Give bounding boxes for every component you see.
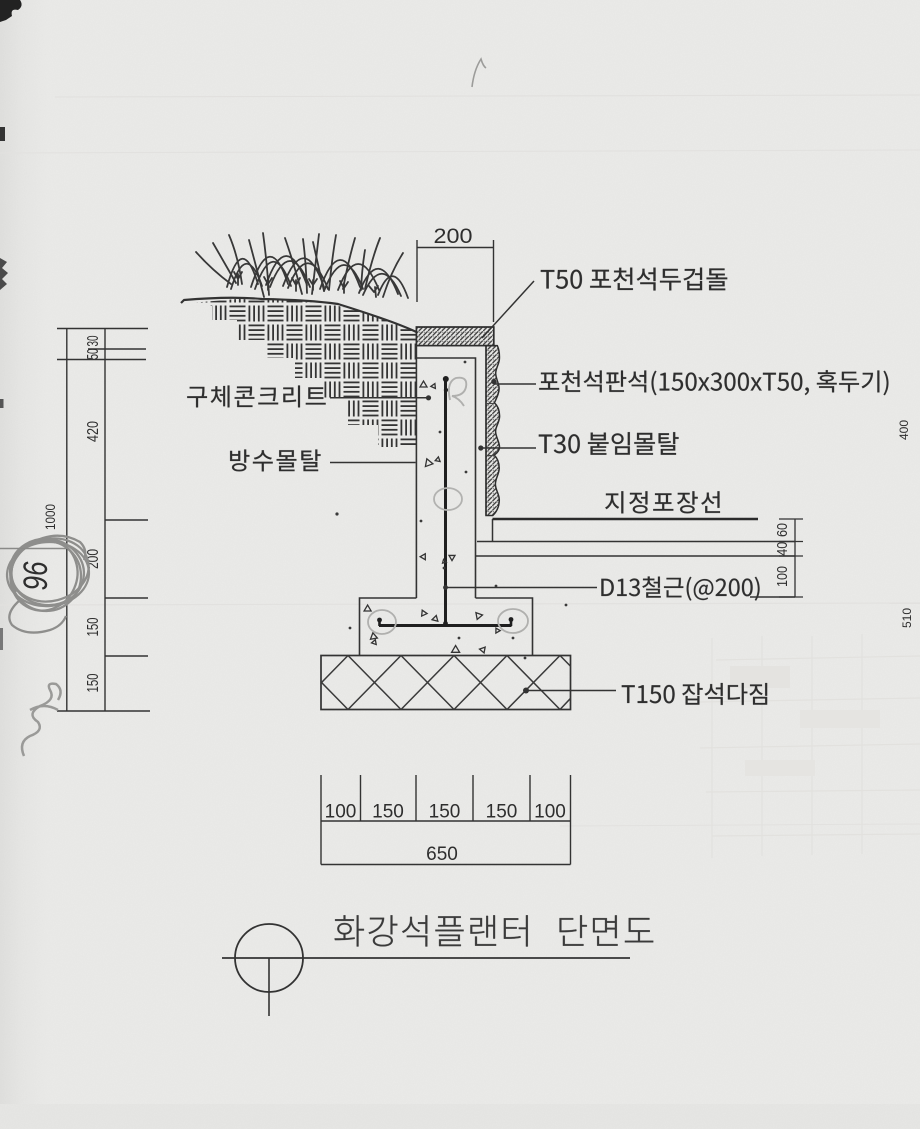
svg-text:400: 400 bbox=[897, 420, 911, 440]
svg-text:100: 100 bbox=[534, 802, 566, 823]
svg-text:50: 50 bbox=[85, 348, 102, 359]
svg-text:150: 150 bbox=[372, 802, 404, 823]
svg-text:100: 100 bbox=[325, 802, 357, 823]
svg-text:510: 510 bbox=[900, 608, 914, 628]
svg-text:96: 96 bbox=[17, 561, 55, 590]
svg-text:200: 200 bbox=[434, 225, 473, 248]
svg-text:30: 30 bbox=[85, 335, 102, 346]
svg-text:1000: 1000 bbox=[42, 504, 58, 530]
svg-text:40: 40 bbox=[775, 542, 791, 556]
svg-text:150: 150 bbox=[85, 617, 102, 636]
svg-text:150: 150 bbox=[85, 673, 102, 692]
svg-text:60: 60 bbox=[775, 523, 791, 537]
svg-text:150: 150 bbox=[486, 802, 518, 823]
svg-text:150: 150 bbox=[429, 802, 461, 823]
svg-text:650: 650 bbox=[426, 844, 458, 865]
svg-text:420: 420 bbox=[85, 421, 102, 442]
svg-text:100: 100 bbox=[775, 566, 791, 587]
